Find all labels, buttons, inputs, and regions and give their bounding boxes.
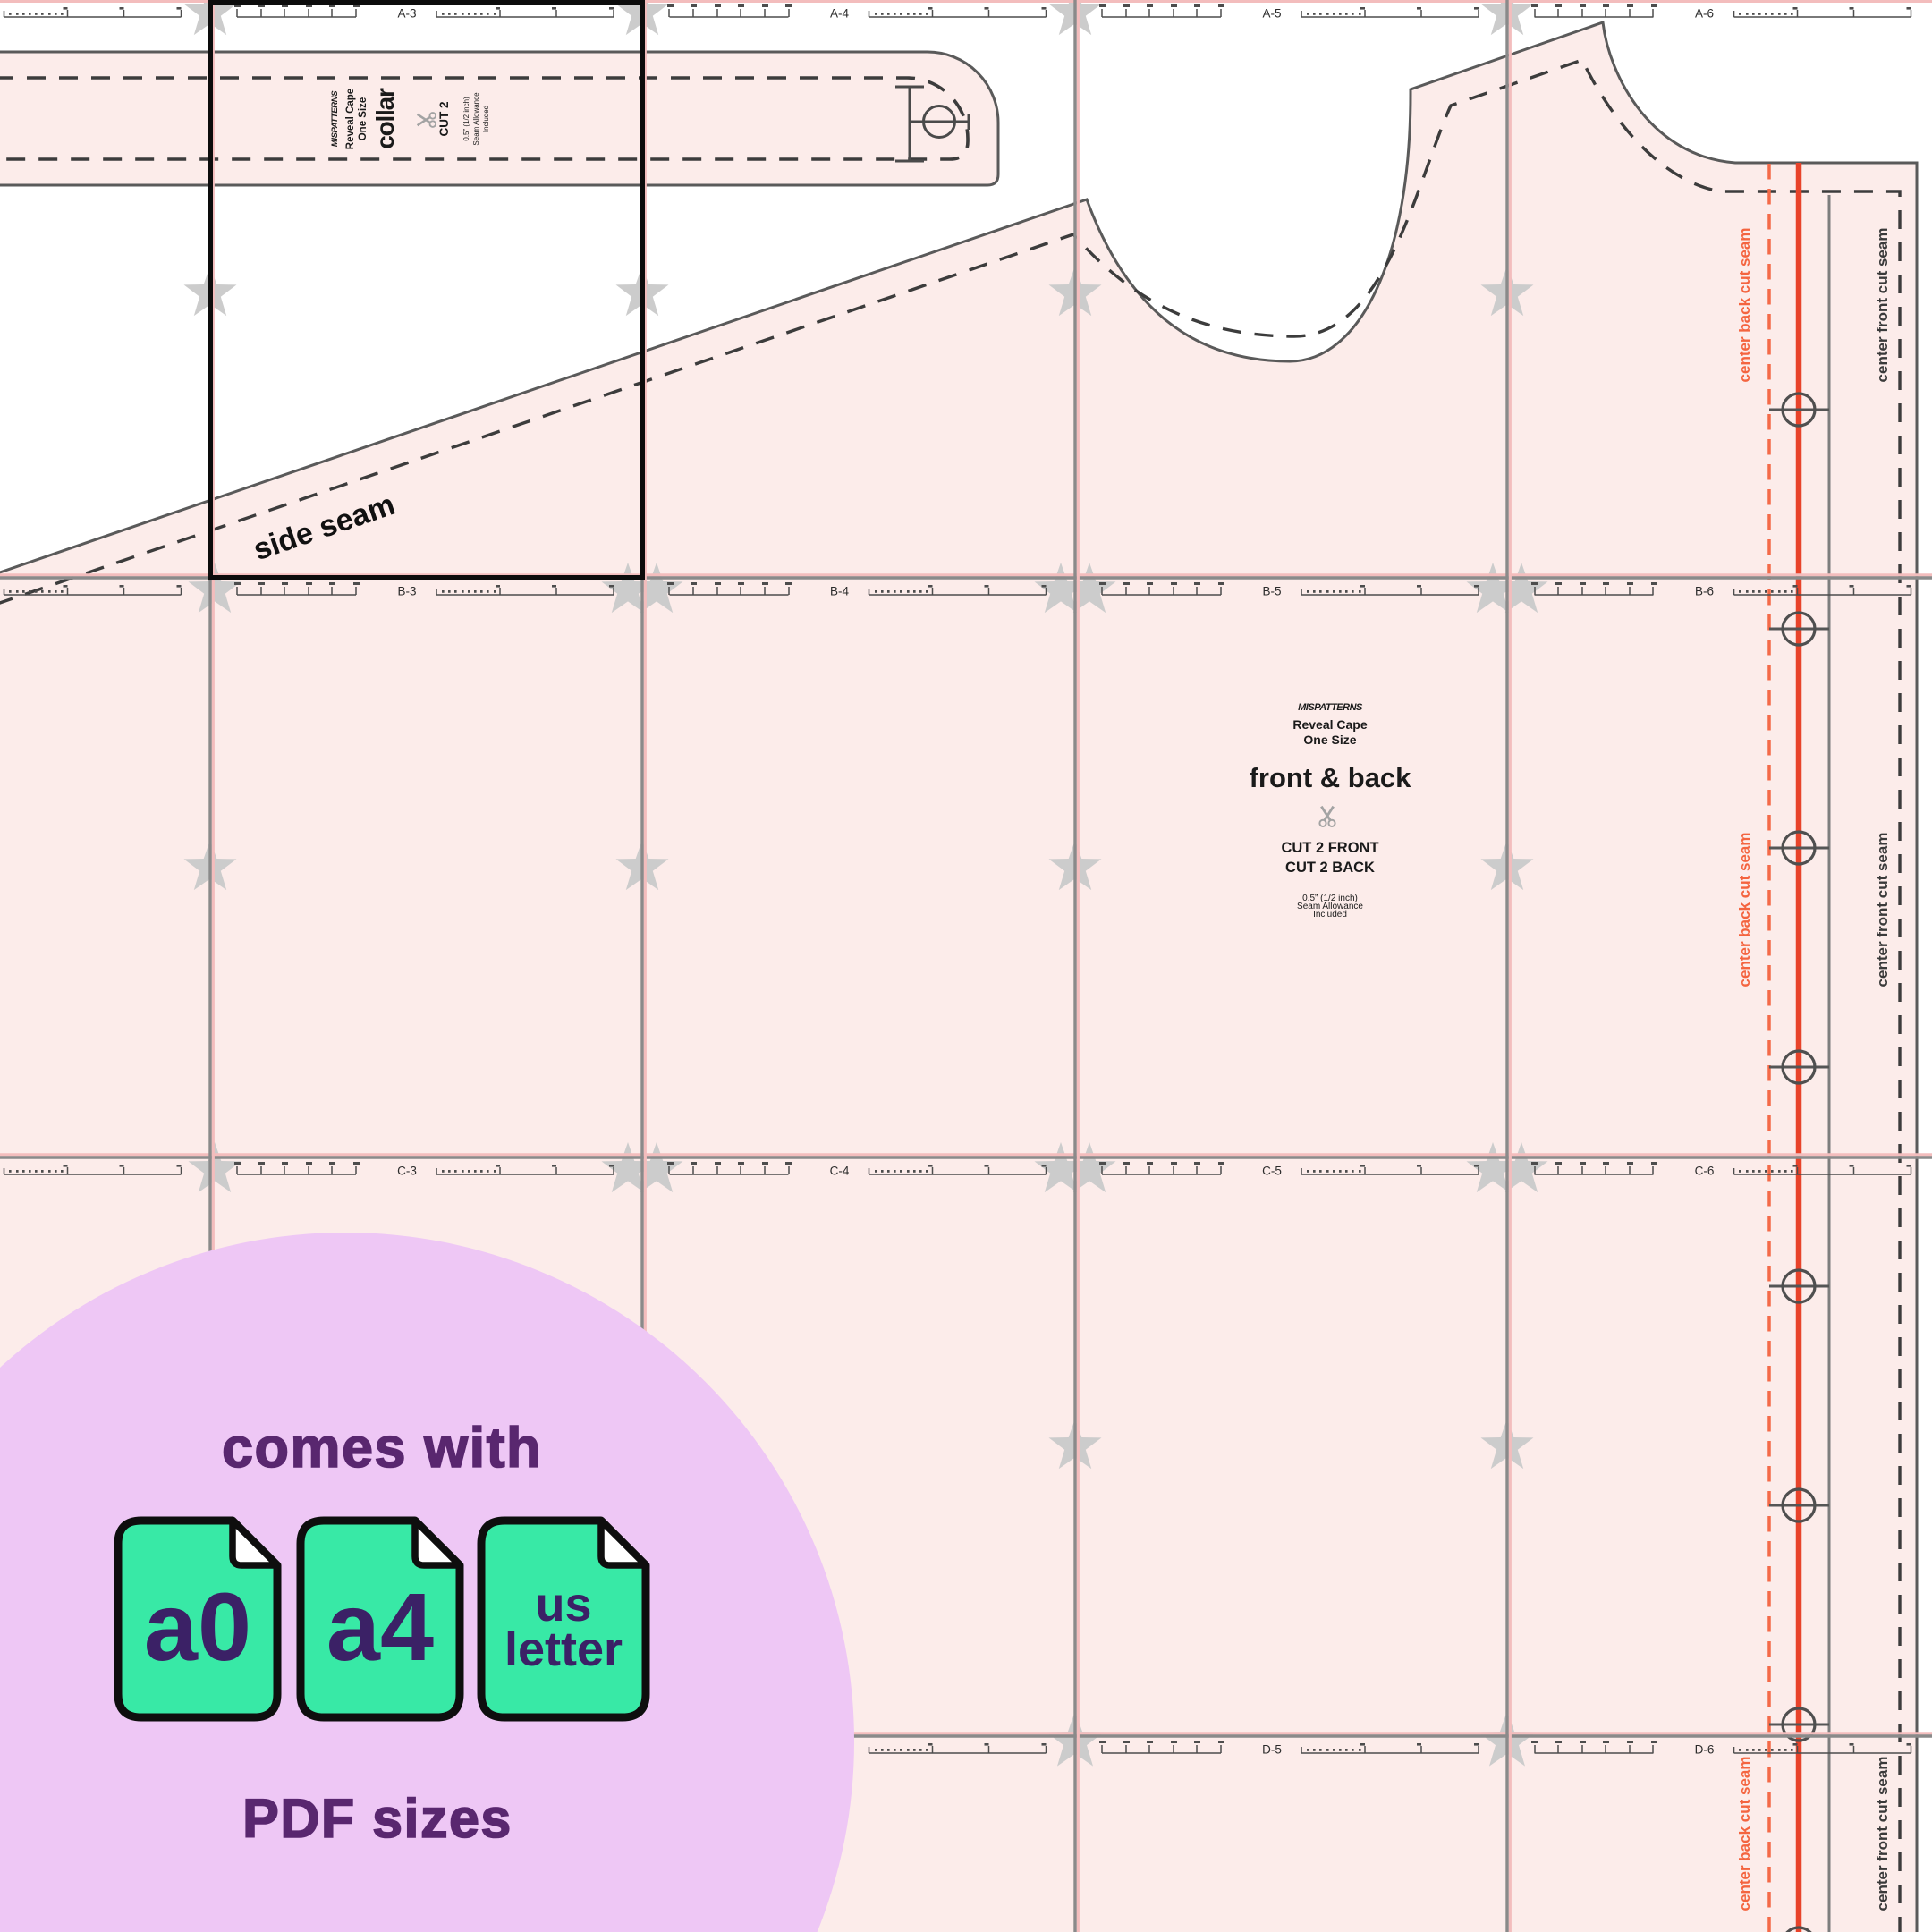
svg-text:B-4: B-4: [830, 585, 850, 598]
svg-text:MISPATTERNS: MISPATTERNS: [330, 90, 340, 147]
svg-text:A-5: A-5: [1262, 7, 1281, 21]
svg-text:CUT 2 BACK: CUT 2 BACK: [1285, 860, 1375, 876]
svg-text:letter: letter: [504, 1623, 623, 1676]
svg-text:D-6: D-6: [1695, 1743, 1715, 1757]
svg-text:Included: Included: [1313, 910, 1347, 919]
svg-text:CUT 2 FRONT: CUT 2 FRONT: [1281, 840, 1378, 856]
svg-text:center front cut seam: center front cut seam: [1874, 833, 1891, 987]
svg-text:center front cut seam: center front cut seam: [1874, 1757, 1891, 1911]
svg-text:C-6: C-6: [1695, 1165, 1715, 1178]
svg-text:One Size: One Size: [358, 97, 369, 141]
svg-text:One Size: One Size: [1303, 733, 1356, 747]
svg-text:B-3: B-3: [397, 585, 416, 598]
svg-text:a0: a0: [144, 1572, 251, 1681]
svg-text:Seam Allowance: Seam Allowance: [472, 92, 480, 146]
svg-text:center back cut seam: center back cut seam: [1736, 228, 1753, 383]
svg-text:collar: collar: [371, 88, 399, 149]
svg-text:MISPATTERNS: MISPATTERNS: [1298, 702, 1363, 713]
svg-text:comes with: comes with: [222, 1417, 542, 1479]
svg-text:A-6: A-6: [1695, 7, 1714, 21]
svg-text:CUT 2: CUT 2: [437, 101, 451, 136]
svg-text:B-6: B-6: [1695, 585, 1714, 598]
svg-text:C-3: C-3: [397, 1165, 417, 1178]
svg-text:C-4: C-4: [830, 1165, 850, 1178]
svg-text:center back cut seam: center back cut seam: [1736, 1757, 1753, 1911]
svg-text:center back cut seam: center back cut seam: [1736, 833, 1753, 987]
svg-text:Included: Included: [482, 106, 490, 132]
svg-text:a4: a4: [326, 1572, 434, 1681]
svg-text:front & back: front & back: [1250, 762, 1412, 793]
svg-text:A-4: A-4: [830, 7, 850, 21]
svg-text:D-5: D-5: [1262, 1743, 1282, 1757]
svg-text:center front cut seam: center front cut seam: [1874, 228, 1891, 383]
svg-text:PDF sizes: PDF sizes: [242, 1788, 513, 1849]
svg-text:0.5” (1/2 inch): 0.5” (1/2 inch): [462, 97, 470, 141]
svg-text:B-5: B-5: [1262, 585, 1281, 598]
svg-text:C-5: C-5: [1262, 1165, 1282, 1178]
svg-text:Reveal Cape: Reveal Cape: [345, 89, 356, 149]
svg-text:Reveal Cape: Reveal Cape: [1292, 717, 1367, 732]
svg-text:A-3: A-3: [397, 7, 416, 21]
